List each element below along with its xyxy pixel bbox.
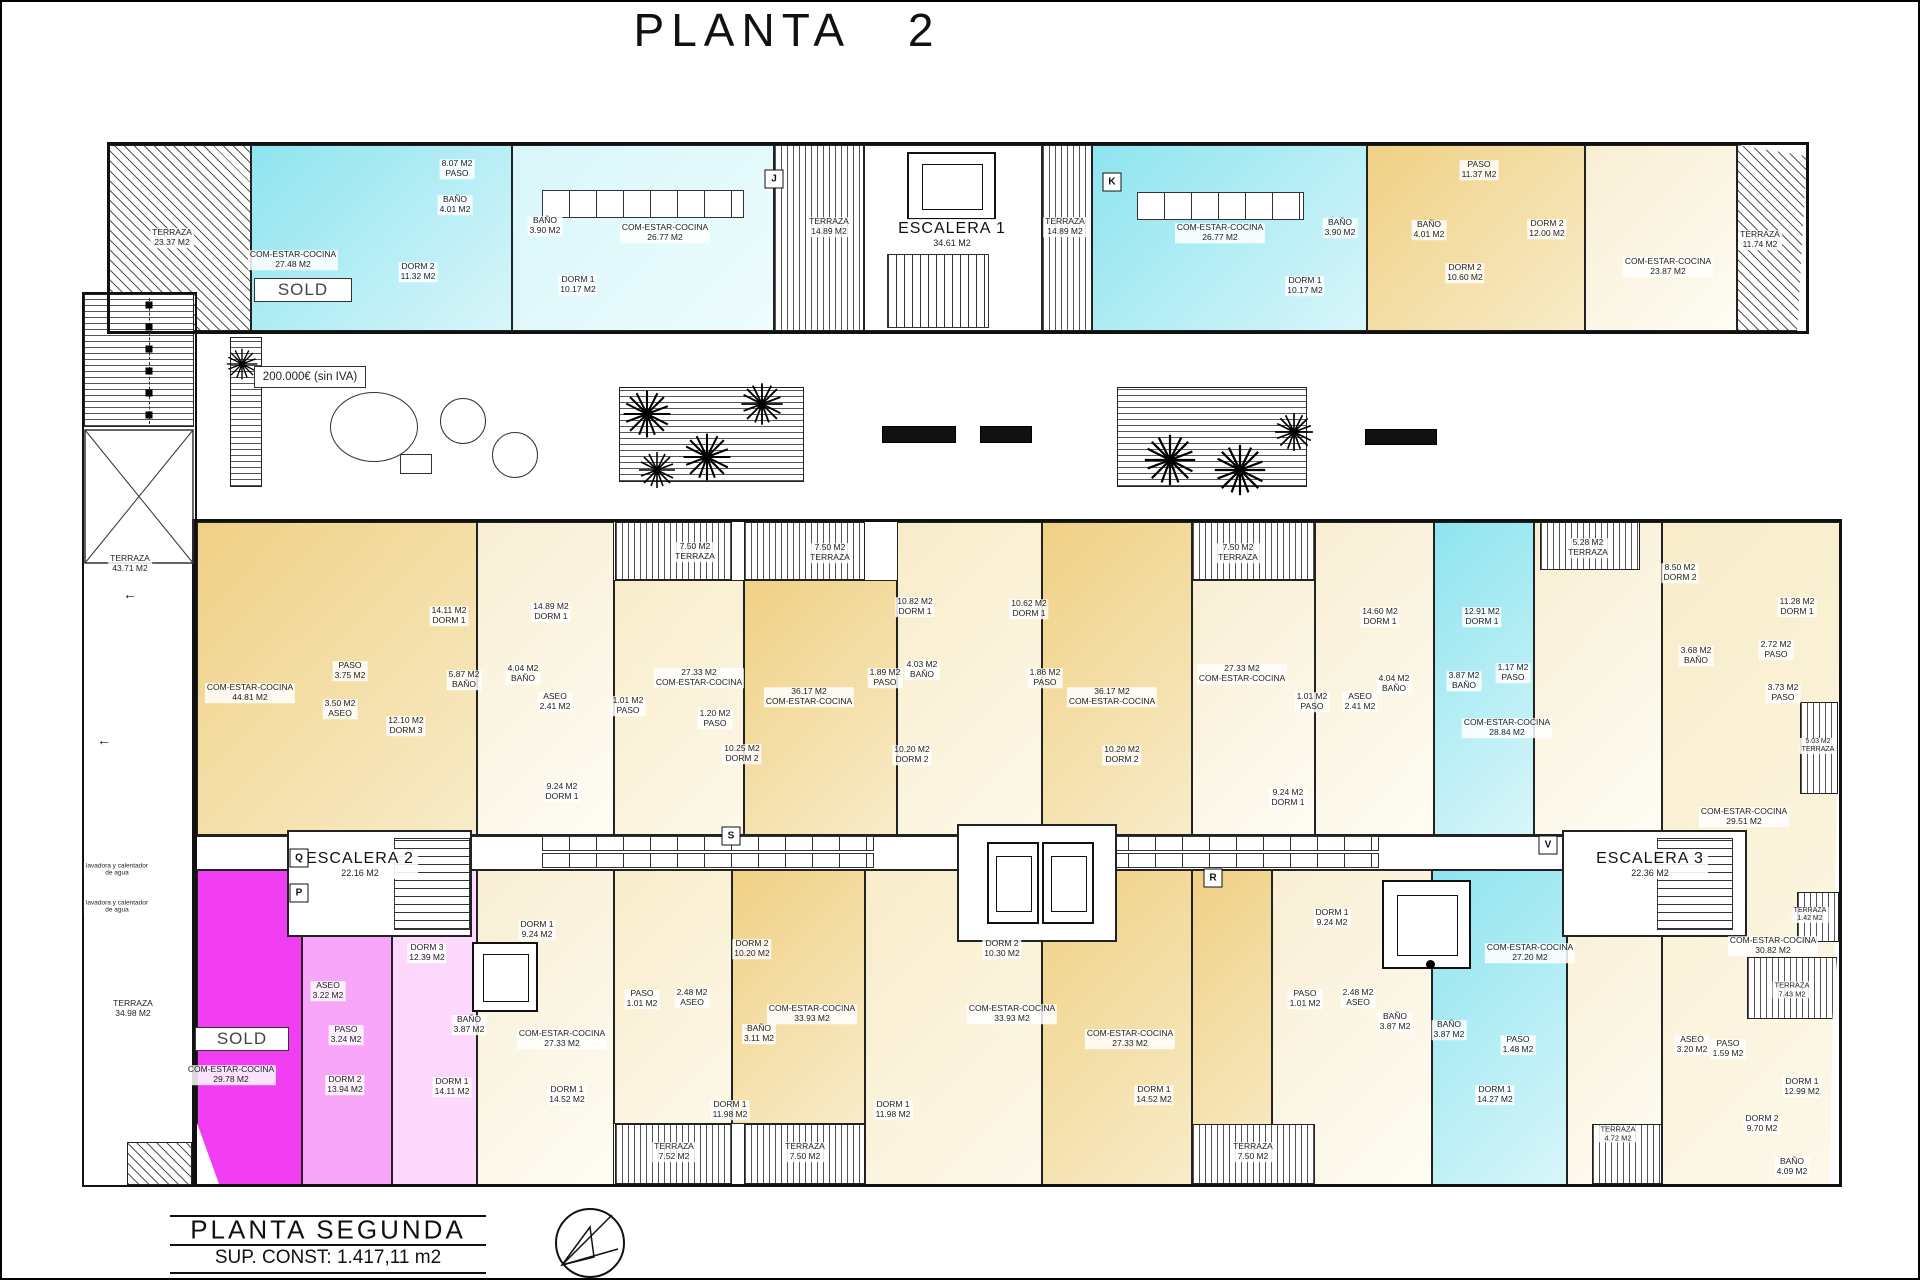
room-label: 14.89 M2DORM 1 <box>531 602 570 622</box>
room-label: 9.24 M2DORM 1 <box>1269 788 1306 808</box>
room-label: COM-ESTAR-COCINA28.84 M2 <box>1462 718 1552 738</box>
room-label: DORM 29.70 M2 <box>1743 1114 1780 1134</box>
north-compass-icon <box>550 1205 630 1280</box>
apartment-panel <box>1042 522 1192 835</box>
apartment-panel <box>744 580 897 835</box>
room-label: DORM 114.52 M2 <box>547 1085 586 1105</box>
room-label: TERRAZA7.52 M2 <box>652 1142 696 1162</box>
room-label: 1.01 M2PASO <box>611 696 646 716</box>
room-label: PASO11.37 M2 <box>1460 160 1499 180</box>
room-label: 4.04 M2BAÑO <box>1377 674 1412 694</box>
room-label: TERRAZA4.72 M2 <box>1598 1125 1637 1142</box>
room-label: 1.20 M2PASO <box>698 709 733 729</box>
room-label: DORM 114.27 M2 <box>1475 1085 1514 1105</box>
title-block-area: SUP. CONST: 1.417,11 m2 <box>215 1247 441 1269</box>
room-label: DORM 210.60 M2 <box>1445 263 1484 283</box>
arrow-glyph: ← <box>97 732 111 748</box>
room-label: 5.87 M2BAÑO <box>447 670 482 690</box>
plant-icon <box>1142 432 1198 488</box>
price-note: 200.000€ (sin IVA) <box>254 366 366 388</box>
stair-hatch <box>127 1142 192 1185</box>
room-label: PASO3.24 M2 <box>329 1025 364 1045</box>
room-label: 3.73 M2PASO <box>1766 683 1801 703</box>
room-label: 8.07 M2PASO <box>440 159 475 179</box>
room-label: 1.17 M2PASO <box>1496 663 1531 683</box>
plant-icon <box>681 431 733 483</box>
terrace-hatch <box>774 145 864 331</box>
room-label: COM-ESTAR-COCINA26.77 M2 <box>1175 223 1265 243</box>
plan-marker: Q <box>290 849 309 868</box>
room-label: COM-ESTAR-COCINA23.87 M2 <box>1623 257 1713 277</box>
plant-icon <box>637 450 677 490</box>
room-label: 36.17 M2COM-ESTAR-COCINA <box>764 687 854 707</box>
room-label: 11.28 M2DORM 1 <box>1778 597 1817 617</box>
valve-icon <box>146 412 153 419</box>
room-label: 2.72 M2PASO <box>1759 640 1794 660</box>
room-label: COM-ESTAR-COCINA30.82 M2 <box>1728 936 1818 956</box>
kitchen-counter <box>1137 192 1304 220</box>
bench <box>1365 429 1437 445</box>
plan-marker: R <box>1204 869 1223 888</box>
sold-badge: SOLD <box>195 1027 289 1051</box>
room-label: COM-ESTAR-COCINA33.93 M2 <box>967 1004 1057 1024</box>
elevator <box>1382 880 1471 969</box>
terrace-hatch <box>1042 145 1092 331</box>
room-label: 7.50 M2TERRAZA <box>1216 543 1260 563</box>
title-block-line <box>170 1244 486 1246</box>
room-label: DORM 210.30 M2 <box>982 939 1021 959</box>
room-label: DORM 114.52 M2 <box>1134 1085 1173 1105</box>
room-label: DORM 312.39 M2 <box>407 943 446 963</box>
room-label: BAÑO3.11 M2 <box>742 1024 776 1044</box>
room-label: 10.25 M2DORM 2 <box>722 744 761 764</box>
plant-icon <box>621 388 673 440</box>
room-label: 2.48 M2ASEO <box>675 988 710 1008</box>
plan-marker: P <box>290 884 309 903</box>
room-label: COM-ESTAR-COCINA29.51 M2 <box>1699 807 1789 827</box>
kitchen-counter <box>542 836 874 851</box>
plant-icon <box>1212 442 1268 498</box>
room-label: PASO1.59 M2 <box>1711 1039 1746 1059</box>
arrow-glyph: ← <box>123 586 137 602</box>
room-label: BAÑO3.87 M2 <box>1432 1020 1467 1040</box>
apartment-panel <box>1585 145 1737 331</box>
kitchen-counter <box>542 190 744 218</box>
room-label: TERRAZA1.42 M2 <box>1792 907 1829 923</box>
room-label: 10.62 M2DORM 1 <box>1009 599 1048 619</box>
room-label: DORM 212.00 M2 <box>1527 219 1566 239</box>
seat <box>400 454 432 474</box>
room-label: DORM 110.17 M2 <box>1285 276 1324 296</box>
apartment-panel <box>732 867 865 1124</box>
valve-icon <box>146 346 153 353</box>
bench <box>882 426 956 443</box>
page-title: PLANTA 2 <box>634 3 941 57</box>
room-label: DORM 110.17 M2 <box>558 275 597 295</box>
title-block-name: PLANTA SEGUNDA <box>190 1215 466 1246</box>
elevator <box>987 842 1039 924</box>
room-label: 5.03 M2TERRAZA <box>1800 738 1837 754</box>
room-label: COM-ESTAR-COCINA27.33 M2 <box>1085 1029 1175 1049</box>
room-label: 3.87 M2BAÑO <box>1447 671 1482 691</box>
apartment-panel <box>477 867 614 1187</box>
bench <box>980 426 1032 443</box>
room-label: 8.50 M2DORM 2 <box>1661 563 1698 583</box>
column-dot <box>1426 960 1435 969</box>
room-label: COM-ESTAR-COCINA26.77 M2 <box>620 223 710 243</box>
room-label: TERRAZA7.50 M2 <box>783 1142 827 1162</box>
room-label: TERRAZA34.98 M2 <box>111 999 155 1019</box>
skylight-cross <box>84 429 194 564</box>
stairs-icon <box>887 254 989 328</box>
title-block-line <box>170 1272 486 1274</box>
room-label: DORM 19.24 M2 <box>1313 908 1350 928</box>
room-label: 5.28 M2TERRAZA <box>1566 538 1610 558</box>
room-label: COM-ESTAR-COCINA29.78 M2 <box>186 1065 276 1085</box>
room-label: 36.17 M2COM-ESTAR-COCINA <box>1067 687 1157 707</box>
room-label: PASO3.75 M2 <box>333 661 368 681</box>
room-label: 27.33 M2COM-ESTAR-COCINA <box>1197 664 1287 684</box>
room-label: COM-ESTAR-COCINA27.48 M2 <box>248 250 338 270</box>
stair-label: ESCALERA 134.61 M2 <box>894 219 1010 249</box>
room-label: ASEO3.20 M2 <box>1675 1035 1710 1055</box>
room-label: 10.20 M2DORM 2 <box>892 745 931 765</box>
plan-marker: K <box>1103 173 1122 192</box>
room-label: BAÑO3.87 M2 <box>1378 1012 1413 1032</box>
stair-label: ESCALERA 222.16 M2 <box>302 849 418 879</box>
room-label: DORM 19.24 M2 <box>518 920 555 940</box>
room-label: BAÑO4.09 M2 <box>1775 1157 1810 1177</box>
room-label: TERRAZA14.89 M2 <box>1043 217 1087 237</box>
room-label: DORM 111.98 M2 <box>874 1100 913 1120</box>
room-label: lavadora y calentadorde agua <box>84 863 150 878</box>
room-label: COM-ESTAR-COCINA27.33 M2 <box>517 1029 607 1049</box>
room-label: 10.82 M2DORM 1 <box>895 597 934 617</box>
room-label: DORM 213.94 M2 <box>325 1075 364 1095</box>
elevator <box>472 942 538 1012</box>
room-label: 14.11 M2DORM 1 <box>430 606 469 626</box>
room-label: ASEO3.22 M2 <box>311 981 346 1001</box>
room-label: BAÑO3.90 M2 <box>1323 218 1358 238</box>
room-label: 27.33 M2COM-ESTAR-COCINA <box>654 668 744 688</box>
pipe-line <box>149 298 150 424</box>
table-outline <box>330 392 418 462</box>
valve-icon <box>146 368 153 375</box>
room-label: DORM 114.11 M2 <box>433 1077 472 1097</box>
plan-marker: J <box>765 170 784 189</box>
valve-icon <box>146 390 153 397</box>
room-label: PASO1.01 M2 <box>1288 989 1323 1009</box>
room-label: 3.50 M2ASEO <box>323 699 358 719</box>
plant-icon <box>739 381 785 427</box>
kitchen-counter <box>542 853 874 868</box>
room-label: DORM 211.32 M2 <box>399 262 438 282</box>
ramp-hatch <box>84 294 194 427</box>
room-label: 12.91 M2DORM 1 <box>1462 607 1501 627</box>
room-label: BAÑO4.01 M2 <box>1412 220 1447 240</box>
room-label: TERRAZA11.74 M2 <box>1738 230 1782 250</box>
room-label: COM-ESTAR-COCINA33.93 M2 <box>767 1004 857 1024</box>
sold-badge: SOLD <box>254 278 352 302</box>
plant-icon <box>1273 411 1315 453</box>
room-label: 4.03 M2BAÑO <box>905 660 940 680</box>
room-label: 1.86 M2PASO <box>1028 668 1063 688</box>
room-label: PASO1.01 M2 <box>625 989 660 1009</box>
room-label: 7.50 M2TERRAZA <box>808 543 852 563</box>
stair-label: ESCALERA 322.36 M2 <box>1592 849 1708 879</box>
table-round <box>492 432 538 478</box>
room-label: COM-ESTAR-COCINA44.81 M2 <box>205 683 295 703</box>
table-round <box>440 398 486 444</box>
room-label: BAÑO3.87 M2 <box>452 1015 487 1035</box>
room-label: 1.01 M2PASO <box>1295 692 1330 712</box>
room-label: DORM 210.20 M2 <box>732 939 771 959</box>
plan-marker: S <box>722 827 741 846</box>
room-label: 10.20 M2DORM 2 <box>1102 745 1141 765</box>
room-label: TERRAZA7.50 M2 <box>1231 1142 1275 1162</box>
room-label: 3.68 M2BAÑO <box>1679 646 1714 666</box>
room-label: DORM 112.99 M2 <box>1782 1077 1821 1097</box>
room-label: 12.10 M2DORM 3 <box>386 716 425 736</box>
valve-icon <box>146 324 153 331</box>
room-label: 4.04 M2BAÑO <box>506 664 541 684</box>
floor-plan-sheet: PLANTA 2 SOLD 200.000€ (sin IVA) <box>0 0 1920 1280</box>
room-label: ASEO2.41 M2 <box>538 692 573 712</box>
room-label: BAÑO4.01 M2 <box>438 195 473 215</box>
room-label: DORM 111.98 M2 <box>711 1100 750 1120</box>
room-label: TERRAZA23.37 M2 <box>150 228 194 248</box>
valve-icon <box>146 302 153 309</box>
room-label: 9.24 M2DORM 1 <box>543 782 580 802</box>
room-label: TERRAZA14.89 M2 <box>807 217 851 237</box>
elevator <box>907 152 996 220</box>
room-label: 2.48 M2ASEO <box>1341 988 1376 1008</box>
room-label: BAÑO3.90 M2 <box>528 216 563 236</box>
apartment-panel <box>1315 522 1434 835</box>
room-label: 7.50 M2TERRAZA <box>673 542 717 562</box>
room-label: 14.60 M2DORM 1 <box>1360 607 1399 627</box>
room-label: PASO1.48 M2 <box>1501 1035 1536 1055</box>
room-label: COM-ESTAR-COCINA27.20 M2 <box>1485 943 1575 963</box>
room-label: 1.89 M2PASO <box>868 668 903 688</box>
room-label: TERRAZA7.43 M2 <box>1772 981 1811 998</box>
plan-marker: V <box>1539 836 1558 855</box>
room-label: TERRAZA43.71 M2 <box>108 554 152 574</box>
room-label: ASEO2.41 M2 <box>1343 692 1378 712</box>
room-label: lavadora y calentadorde agua <box>84 900 150 915</box>
elevator <box>1042 842 1094 924</box>
